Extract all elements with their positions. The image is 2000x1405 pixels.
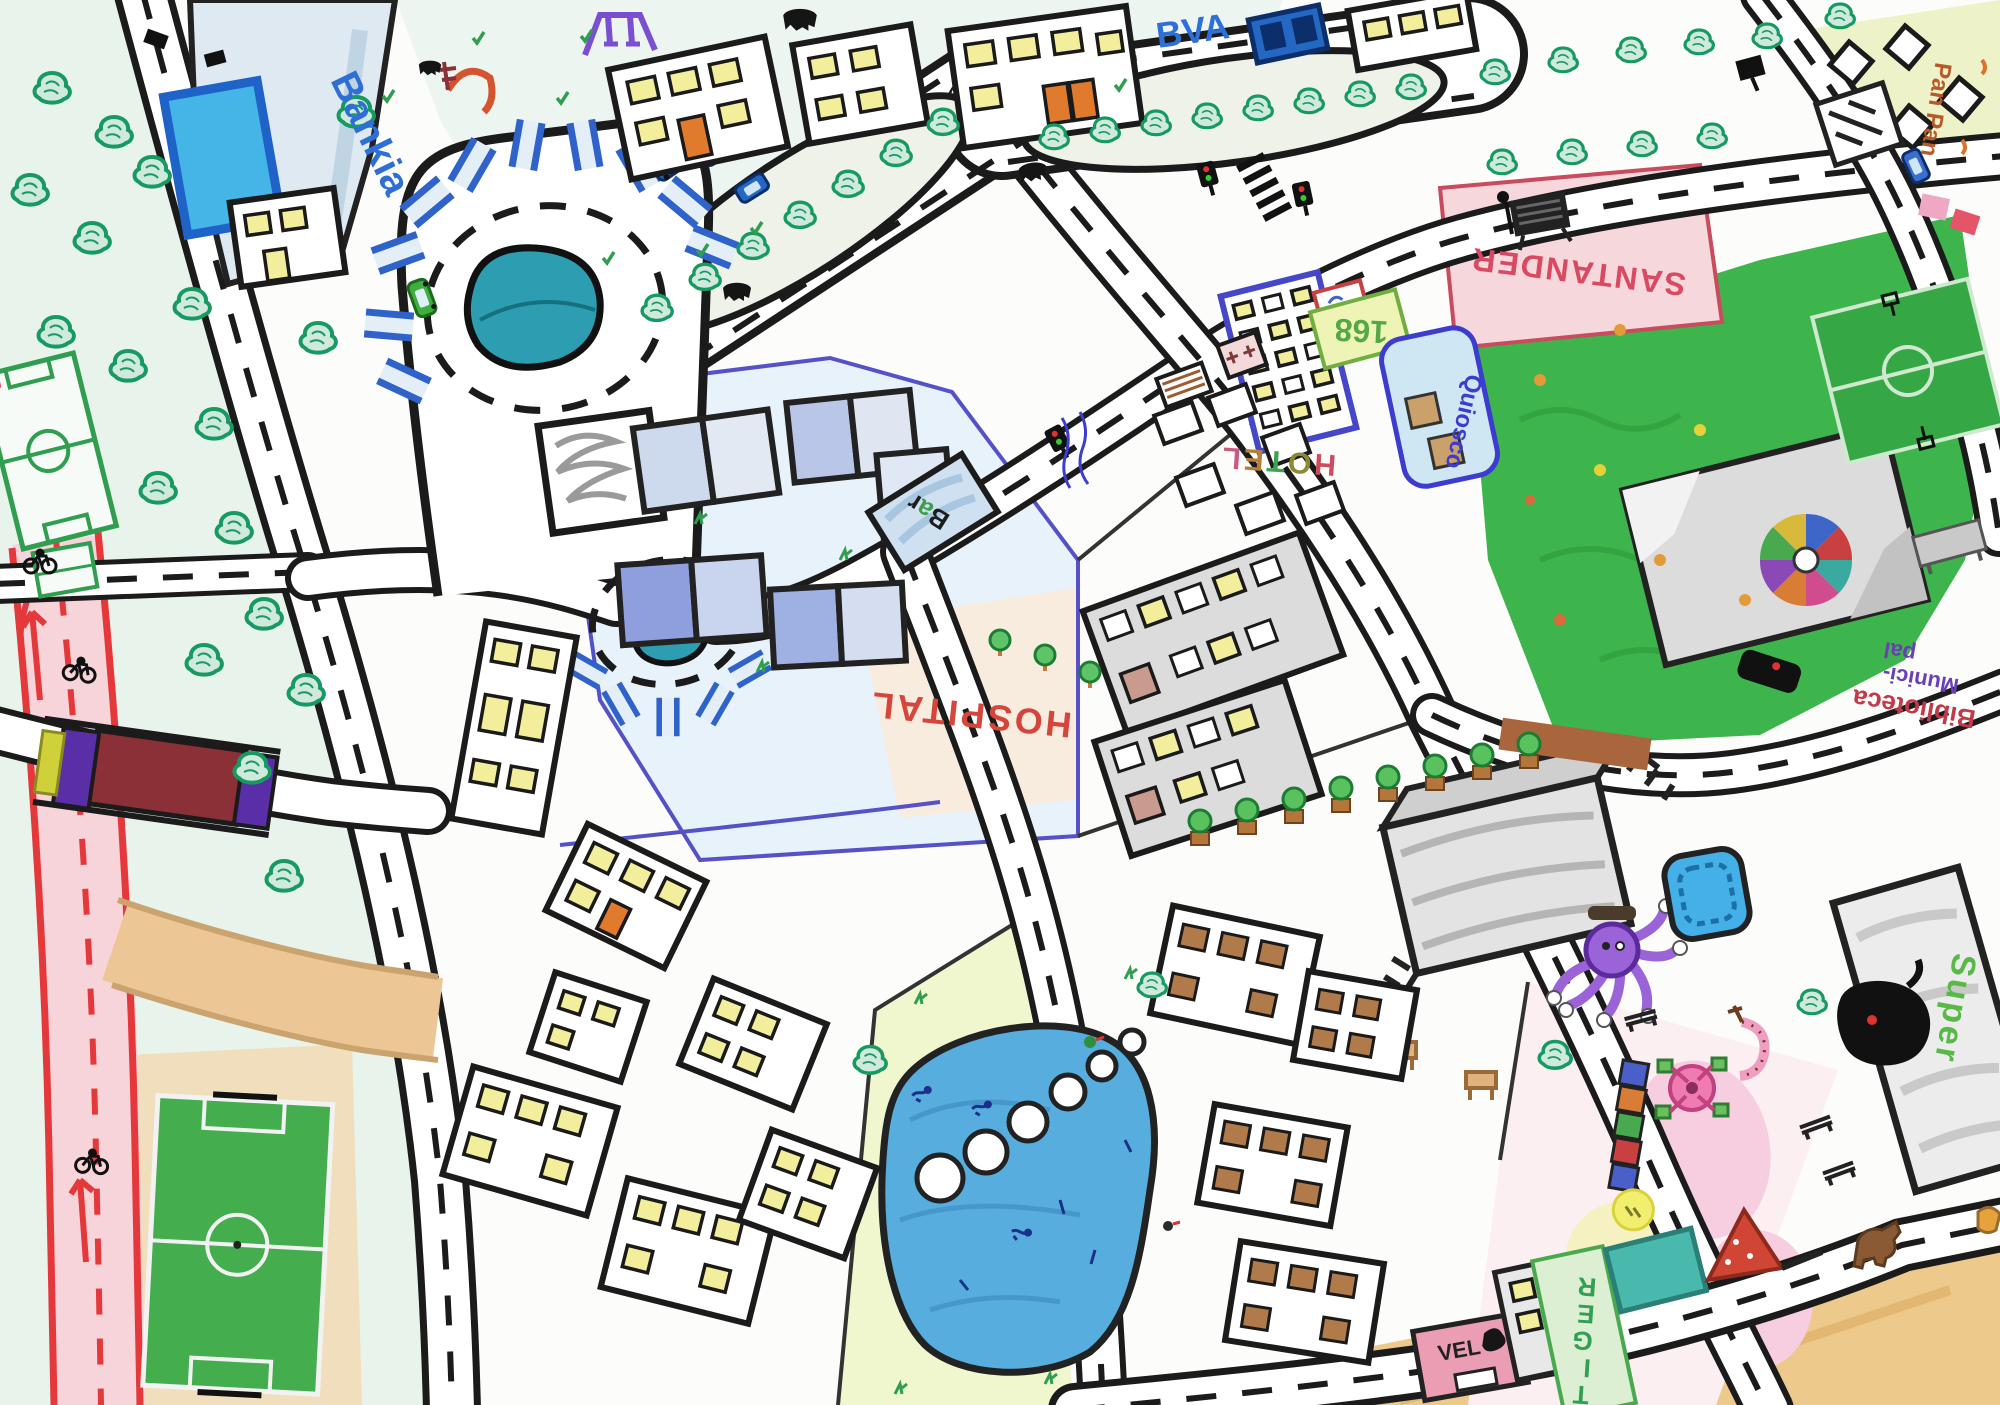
soccer-field-south <box>143 1092 333 1399</box>
bench-icon <box>1823 1163 1858 1187</box>
splash-pool <box>1661 846 1752 942</box>
park-pond <box>882 1026 1155 1372</box>
hotel-letter: H <box>1310 447 1337 482</box>
hotel-letter: L <box>1218 440 1242 474</box>
crosswalk <box>1236 152 1292 222</box>
tan-building-1 <box>1150 906 1320 1045</box>
tan-building-3 <box>1225 1241 1384 1362</box>
map-canvas: Bankia BVA Pan Pan SANTANDER Quiosco 168… <box>0 0 2000 1405</box>
trash-bin-icon <box>1735 55 1769 95</box>
hotel-letter: T <box>1263 443 1287 477</box>
hand-drawn-map: Bankia BVA Pan Pan SANTANDER Quiosco 168… <box>0 0 2000 1405</box>
hotel-label: HOTEL <box>1218 440 1337 481</box>
hotel-letter: E <box>1240 442 1265 477</box>
residential-building-1 <box>451 622 576 835</box>
house-below-bankia <box>230 188 346 287</box>
traffic-light-icon <box>1291 180 1316 217</box>
residential-building-7 <box>529 972 646 1082</box>
tan-building-4 <box>1293 971 1417 1079</box>
hotel-letter: O <box>1284 445 1313 480</box>
tiger-letter: I <box>1583 1353 1592 1383</box>
orange-chair <box>1978 1207 2000 1232</box>
mosaic-circle <box>1760 514 1852 606</box>
residential-building-6 <box>679 978 827 1109</box>
top-block-building-2 <box>792 24 928 143</box>
tan-building-2 <box>1197 1104 1347 1226</box>
tiger-letter: R <box>1576 1271 1597 1302</box>
bus-168-label: 168 <box>1334 312 1389 351</box>
